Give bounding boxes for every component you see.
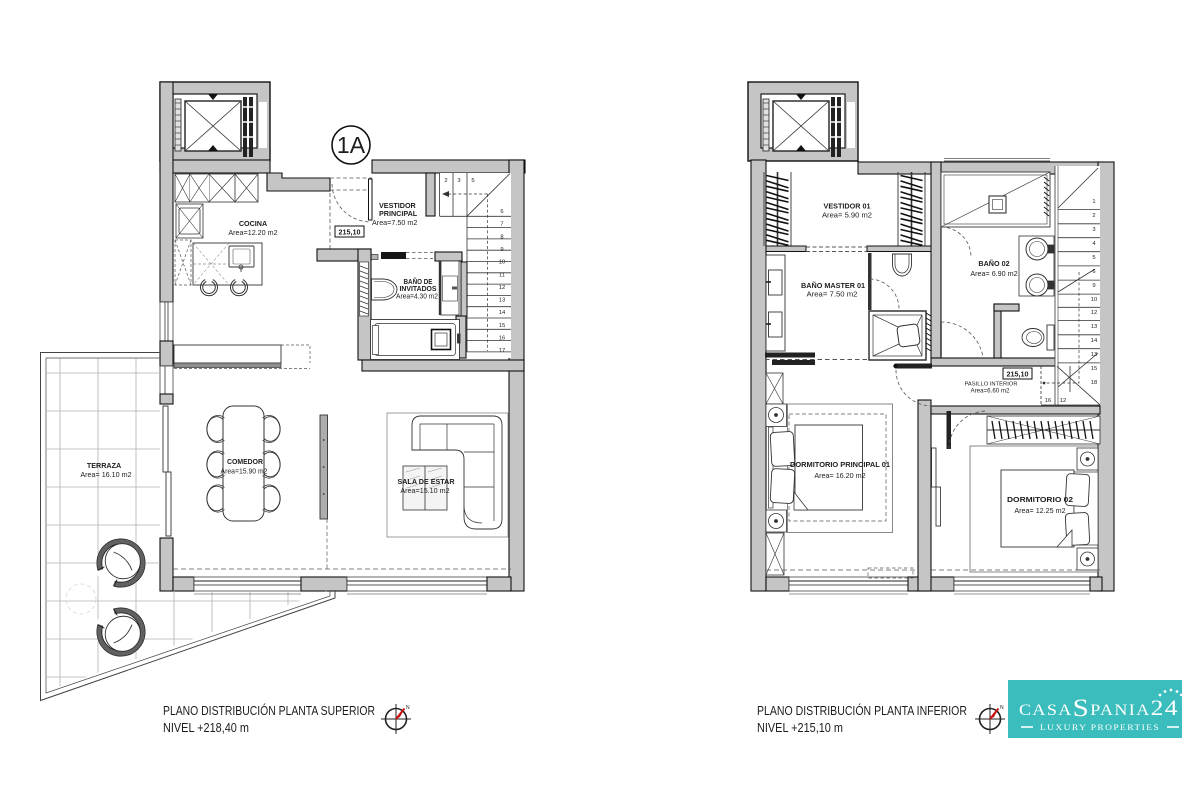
svg-text:5: 5: [471, 178, 474, 184]
svg-text:13: 13: [1091, 352, 1097, 358]
svg-text:10: 10: [499, 260, 505, 266]
svg-text:Area= 6.90 m2: Area= 6.90 m2: [970, 269, 1017, 278]
svg-text:12: 12: [1060, 398, 1066, 404]
svg-text:Area= 5.90 m2: Area= 5.90 m2: [822, 211, 872, 220]
svg-text:Area=4.30 m2: Area=4.30 m2: [396, 292, 438, 301]
svg-text:PLANO DISTRIBUCIÓN PLANTA SUPE: PLANO DISTRIBUCIÓN PLANTA SUPERIOR: [163, 703, 375, 718]
svg-text:Area=12.20 m2: Area=12.20 m2: [228, 228, 277, 237]
svg-text:Area=15.90 m2: Area=15.90 m2: [221, 467, 268, 476]
svg-text:18: 18: [1091, 380, 1097, 386]
svg-text:15: 15: [499, 323, 505, 329]
svg-text:DORMITORIO 02: DORMITORIO 02: [1007, 495, 1073, 504]
svg-text:12: 12: [499, 285, 505, 291]
svg-text:BAÑO 02: BAÑO 02: [978, 259, 1009, 268]
svg-text:Area=6.60 m2: Area=6.60 m2: [971, 389, 1011, 395]
svg-text:DORMITORIO PRINCIPAL 01: DORMITORIO PRINCIPAL 01: [790, 460, 890, 469]
svg-text:215,10: 215,10: [1007, 370, 1029, 379]
svg-text:PASILLO INTERIOR: PASILLO INTERIOR: [965, 382, 1018, 388]
svg-text:9: 9: [1092, 283, 1095, 289]
svg-text:7: 7: [500, 222, 503, 228]
svg-text:N: N: [406, 705, 410, 711]
svg-text:1: 1: [1092, 199, 1095, 205]
svg-text:NIVEL +218,40 m: NIVEL +218,40 m: [163, 721, 249, 735]
svg-text:Area= 16.20 m2: Area= 16.20 m2: [814, 471, 865, 480]
svg-text:Area= 16.10 m2: Area= 16.10 m2: [80, 470, 131, 479]
svg-text:3: 3: [1092, 227, 1095, 233]
svg-text:LUXURY PROPERTIES: LUXURY PROPERTIES: [1040, 723, 1160, 732]
svg-text:13: 13: [1091, 324, 1097, 330]
svg-text:8: 8: [500, 234, 503, 240]
svg-text:Area=15.10 m2: Area=15.10 m2: [400, 486, 449, 495]
svg-text:16: 16: [1045, 398, 1051, 404]
svg-text:VESTIDOR 01: VESTIDOR 01: [824, 202, 871, 211]
svg-text:15: 15: [1091, 366, 1097, 372]
svg-text:Area= 7.50 m2: Area= 7.50 m2: [807, 290, 858, 299]
svg-text:NIVEL +215,10 m: NIVEL +215,10 m: [757, 721, 843, 735]
svg-text:COMEDOR: COMEDOR: [227, 457, 264, 466]
svg-text:1A: 1A: [337, 132, 366, 158]
svg-text:14: 14: [499, 310, 506, 316]
svg-text:5: 5: [1092, 255, 1095, 261]
svg-text:12: 12: [1091, 310, 1097, 316]
svg-text:3: 3: [457, 178, 460, 184]
svg-text:6: 6: [500, 209, 503, 215]
svg-text:N: N: [1000, 705, 1004, 711]
svg-text:COCINA: COCINA: [239, 219, 267, 228]
svg-text:Area= 12.25 m2: Area= 12.25 m2: [1014, 506, 1065, 515]
svg-text:16: 16: [499, 336, 505, 342]
svg-text:9: 9: [500, 247, 503, 253]
svg-text:10: 10: [1091, 297, 1097, 303]
svg-text:PLANO DISTRIBUCIÓN PLANTA INFE: PLANO DISTRIBUCIÓN PLANTA INFERIOR: [757, 703, 967, 718]
svg-text:2: 2: [444, 178, 447, 184]
svg-text:TERRAZA: TERRAZA: [87, 461, 121, 470]
svg-text:17: 17: [499, 348, 505, 354]
svg-text:6: 6: [1092, 269, 1095, 275]
svg-text:Area=7.50 m2: Area=7.50 m2: [372, 218, 417, 227]
svg-text:215,10: 215,10: [339, 228, 361, 237]
svg-text:14: 14: [1091, 338, 1098, 344]
svg-text:SALA DE ESTAR: SALA DE ESTAR: [397, 477, 455, 486]
svg-text:13: 13: [499, 298, 505, 304]
svg-text:11: 11: [499, 272, 505, 278]
svg-text:PRINCIPAL: PRINCIPAL: [379, 209, 418, 218]
svg-text:2: 2: [1092, 213, 1095, 219]
